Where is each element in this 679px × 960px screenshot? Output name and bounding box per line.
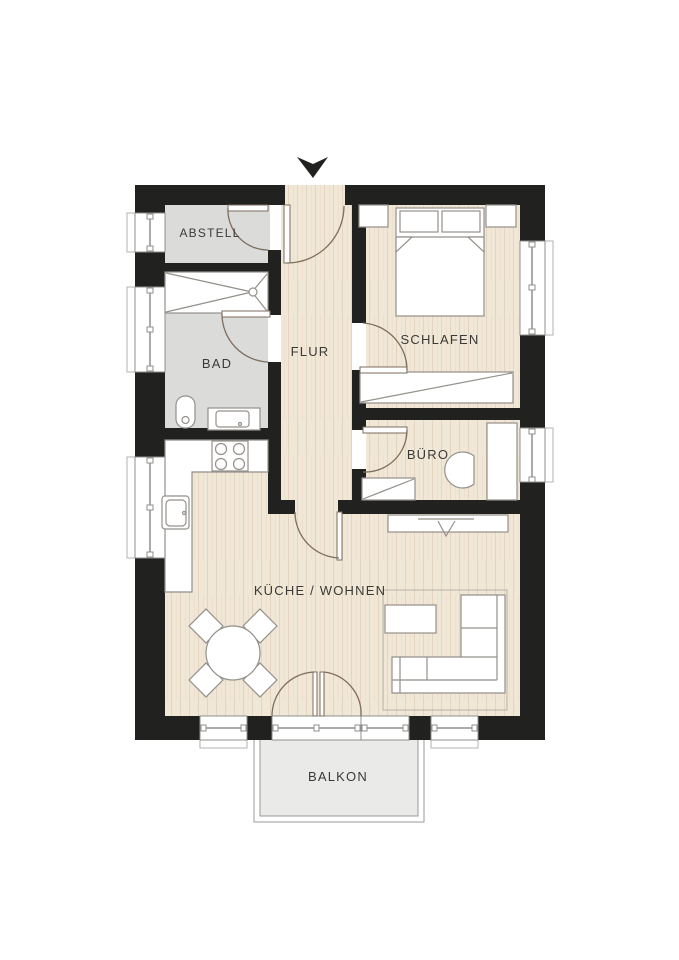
window-living-left [200,716,247,748]
room-label-kueche-wohnen: KÜCHE / WOHNEN [254,583,386,598]
floor-plan-page: ABSTELL BAD FLUR SCHLAFEN BÜRO KÜCHE / W… [0,0,679,960]
nightstand-right [486,205,516,227]
stove [212,441,248,471]
nightstand-left [359,205,388,227]
office-shelf [362,478,415,500]
pillow-left [400,211,438,232]
room-label-bad: BAD [202,356,232,371]
window-storage [127,213,165,252]
toilet [176,396,195,428]
room-label-buero: BÜRO [407,447,449,462]
entrance-recess-floor [285,185,345,207]
window-living-mid [361,716,409,740]
window-bathroom [127,287,165,372]
window-kitchen [127,457,165,558]
dining-table [206,626,260,680]
room-label-flur: FLUR [291,344,330,359]
shower-drain [249,288,257,296]
shower [165,272,268,313]
kitchen-sink [162,496,189,529]
window-bedroom [520,241,553,335]
wardrobe [360,372,513,403]
floor-plan-drawing: ABSTELL BAD FLUR SCHLAFEN BÜRO KÜCHE / W… [0,0,679,960]
coffee-table [385,605,436,633]
desk [487,423,517,500]
double-bed [396,208,484,316]
window-office [520,428,553,482]
room-label-schlafen: SCHLAFEN [401,332,480,347]
room-label-abstell: ABSTELL [179,226,240,240]
bathroom-vanity [208,408,260,430]
balcony-door-glazing [272,716,361,740]
pillow-right [442,211,480,232]
room-label-balkon: BALKON [308,769,368,784]
window-living-right [431,716,478,748]
